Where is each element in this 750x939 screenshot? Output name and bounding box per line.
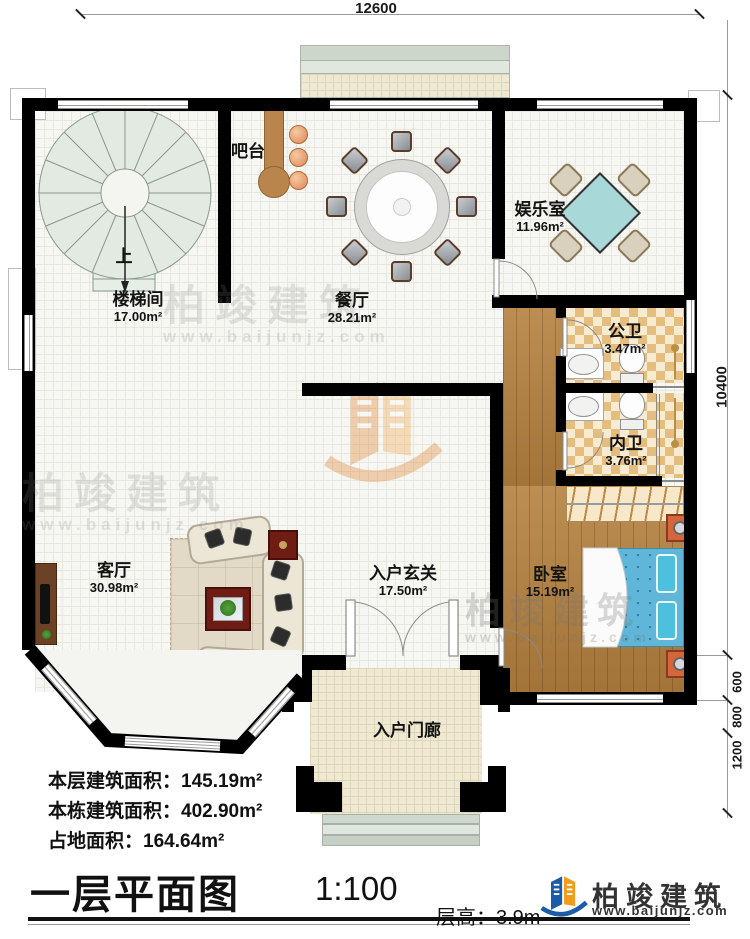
area-info-line: 占地面积：164.64m² bbox=[48, 826, 224, 853]
room-name: 客厅 bbox=[90, 561, 138, 581]
room-name: 餐厅 bbox=[328, 291, 376, 311]
area-label: 本栋建筑面积： bbox=[48, 801, 181, 822]
room-area: 3.47m² bbox=[604, 341, 645, 356]
room-label-private-bath: 内卫 3.76m² bbox=[605, 434, 646, 468]
drawing-scale: 1:100 bbox=[315, 870, 398, 908]
room-area: 15.19m² bbox=[526, 584, 574, 599]
room-area: 3.76m² bbox=[605, 453, 646, 468]
area-value: 145.19m² bbox=[181, 771, 262, 792]
room-label-public-bath: 公卫 3.47m² bbox=[604, 322, 645, 356]
room-name: 卧室 bbox=[526, 565, 574, 585]
dimension-connector bbox=[697, 700, 727, 701]
room-label-foyer: 入户玄关 17.50m² bbox=[369, 564, 437, 598]
floor-plan: 柏竣建筑 www.baijunjz.com 柏竣建筑 www.baijunjz.… bbox=[0, 0, 750, 939]
area-label: 占地面积： bbox=[48, 831, 143, 852]
area-value: 402.90m² bbox=[181, 801, 262, 822]
room-label-porch: 入户门廊 bbox=[373, 721, 441, 741]
room-label-dining: 餐厅 28.21m² bbox=[328, 291, 376, 325]
room-label-living: 客厅 30.98m² bbox=[90, 561, 138, 595]
room-label-bedroom: 卧室 15.19m² bbox=[526, 565, 574, 599]
stairs-up-text: 上 bbox=[116, 247, 133, 267]
drawing-title: 一层平面图 bbox=[30, 862, 240, 920]
room-label-game: 娱乐室 11.96m² bbox=[515, 200, 566, 234]
room-area: 30.98m² bbox=[90, 580, 138, 595]
room-name: 入户玄关 bbox=[369, 564, 437, 584]
floor-height-value: 3.9m bbox=[496, 907, 540, 929]
title-underline bbox=[28, 917, 690, 921]
room-area: 11.96m² bbox=[515, 219, 566, 234]
room-name: 楼梯间 bbox=[113, 290, 164, 310]
room-label-stairwell: 楼梯间 17.00m² bbox=[113, 290, 164, 324]
room-area: 17.50m² bbox=[369, 583, 437, 598]
area-label: 本层建筑面积： bbox=[48, 771, 181, 792]
floor-height-label: 层高： bbox=[436, 907, 496, 929]
room-name: 内卫 bbox=[605, 434, 646, 454]
dimension-right-800: 800 bbox=[730, 706, 745, 728]
room-area: 28.21m² bbox=[328, 310, 376, 325]
room-area: 17.00m² bbox=[113, 309, 164, 324]
dimension-right-total: 10400 bbox=[714, 366, 731, 408]
area-info-line: 本栋建筑面积：402.90m² bbox=[48, 796, 262, 823]
room-label-bar: 吧台 bbox=[231, 142, 265, 162]
dimension-right-600: 600 bbox=[730, 671, 745, 693]
company-logo-icon bbox=[538, 872, 590, 918]
floor-height: 层高：3.9m bbox=[436, 901, 540, 930]
company-logo-url: www.baijunjz.com bbox=[592, 903, 728, 918]
dimension-right-1200: 1200 bbox=[730, 741, 745, 770]
room-name: 娱乐室 bbox=[515, 200, 566, 220]
title-underline-thin bbox=[28, 924, 690, 925]
dimension-top-value: 12600 bbox=[355, 0, 397, 17]
room-name: 吧台 bbox=[231, 142, 265, 162]
stairs-up-label: 上 bbox=[116, 247, 133, 267]
room-name: 入户门廊 bbox=[373, 721, 441, 741]
dimension-connector bbox=[697, 655, 727, 656]
room-name: 公卫 bbox=[604, 322, 645, 342]
area-value: 164.64m² bbox=[143, 831, 224, 852]
area-info-line: 本层建筑面积：145.19m² bbox=[48, 766, 262, 793]
